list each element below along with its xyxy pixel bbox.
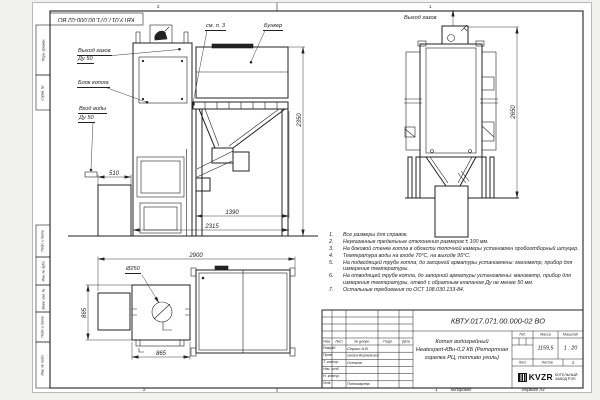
product-name-line3: горелка РЦ, топливо уголь) [425,356,499,362]
header-izm: Изм. [323,340,331,344]
margin-field-perv-primen: Перв. примен. [36,25,50,75]
header-masshtab: Масштаб [563,333,578,337]
margin-field-podp-data-2: Подп. и дата [36,312,50,342]
row-tkontr-name: Осечкин [347,361,362,365]
header-listov: Листов [541,361,552,365]
note-item: 2.Неуказанные предельные отклонения разм… [329,239,585,246]
dim-burner-diameter: Ø250 [125,267,141,274]
row-utv-name: Пономарева [347,382,370,386]
margin-field-inv-dubl: Инв. № дубл. [36,257,50,285]
listov-value: 1 [572,360,574,364]
kvzr-logo-icon [518,373,527,382]
header-list: Лист [335,340,343,344]
leader-lines [90,31,265,172]
sheet-frame [50,11,583,388]
row-nkontr-label: Н. контр. [323,375,340,379]
header-data: Дата [402,340,410,344]
dim-plan-side: 865 [82,307,88,317]
dimension-lines [86,10,520,360]
note-item: 3.На боковой стенке котла в области топо… [329,246,585,253]
frame-details [36,3,277,392]
dim-back-height: 2650 [511,105,517,118]
dim-plan-front: 865 [156,351,166,357]
callout-boiler-block: Блок котла [77,81,110,88]
note-item: 4.Температура воды на входе 70°С, на вых… [329,253,585,260]
plan-view-outline [98,270,290,353]
zone-bottom-right: 1 [435,388,438,393]
header-podp: Подп. [383,340,392,344]
kvzr-brand: KVZR [529,372,553,382]
zone-top-right: 1 [429,5,432,10]
dim-ash-box-depth: 510 [109,171,119,177]
kvzr-logo-caption: КОТЕЛЬНЫЙ ЗАВОД РЭП [555,373,578,381]
drawing-sheet: КВТУ.017.071.00.000-02 ВО 2 1 2 1 Перв. … [33,3,591,392]
callout-gas-outlet-back: Выход газов [404,16,437,22]
callout-see-note-3: см. п. 3 [205,24,226,31]
callout-water-inlet-dn: Ду 50 [78,116,95,123]
zone-top-left: 2 [157,5,160,10]
drawing-page: КВТУ.017.071.00.000-02 ВО 2 1 2 1 Перв. … [0,0,600,400]
header-docum: № докум. [354,340,369,344]
margin-field-inv-podl: Инв. № подл. [36,342,50,388]
dim-total-depth: 2315 [205,224,218,230]
plan-view-details [132,266,295,356]
footer-format: Формат А3 [522,388,545,392]
callout-gas-outlet-dn: Ду 50 [77,57,94,64]
header-list2: Лист [519,361,527,365]
row-nachotd-label: Нач. отд. [323,368,340,372]
massa-value: 1159,5 [537,346,553,351]
row-razrab-label: Разраб. [323,347,336,351]
note-item: 7.Остальные требования по ОСТ 108.030.13… [329,287,585,294]
scale-value: 1 : 20 [564,346,578,351]
zone-bottom-left: 2 [143,388,146,393]
callout-water-inlet: Вход воды [78,107,107,114]
top-stamp-text: КВТУ.017.071.00.000-02 ВО [58,16,134,22]
footer-copied: Копировал [451,388,472,392]
note-item: 6.На отводящей трубе котла, до запорной … [329,273,585,287]
dim-feed-span: 1390 [225,210,238,216]
row-prov-label: Пров. [323,354,333,358]
manufacturer-logo: KVZR КОТЕЛЬНЫЙ ЗАВОД РЭП [513,367,582,387]
margin-field-vzam-inv: Взам. инв. № [36,285,50,312]
dim-front-height: 2350 [297,113,303,126]
drawing-linework [33,3,591,392]
front-view-details [85,25,288,236]
note-item: 1.Все размеры для справок. [329,232,585,239]
dim-plan-width: 2900 [189,253,202,259]
callout-bunker: Бункер [263,24,283,31]
callout-gas-outlet: Выход газов [77,49,112,56]
row-tkontr-label: Т. контр. [323,361,339,365]
margin-field-sprav-no: Справ. № [36,75,50,110]
top-stamp-box: КВТУ.017.071.00.000-02 ВО [50,13,143,25]
technical-notes: 1.Все размеры для справок. 2.Неуказанные… [329,232,585,294]
header-massa: Масса [540,333,550,337]
back-view-outline [405,26,519,237]
row-razrab-name: Сергин А.В. [347,347,369,351]
note-item: 5.На подводящей трубе котла, до запорной… [329,260,585,274]
product-name-line1: Котел водогрейный [435,340,488,346]
row-utv-label: Утв. [323,382,331,386]
product-name-line2: Heatexpert-КВн-0,2 КБ (Ретортная [416,348,508,354]
header-lit: Лит. [519,333,525,337]
title-block-doc-number: КВТУ.017.071.00.000-02 ВО [451,317,545,324]
row-prov-name: Онегов-Вережинский [347,354,379,357]
margin-field-podp-data-1: Подп. и дата [36,225,50,257]
back-view-details [404,25,498,183]
